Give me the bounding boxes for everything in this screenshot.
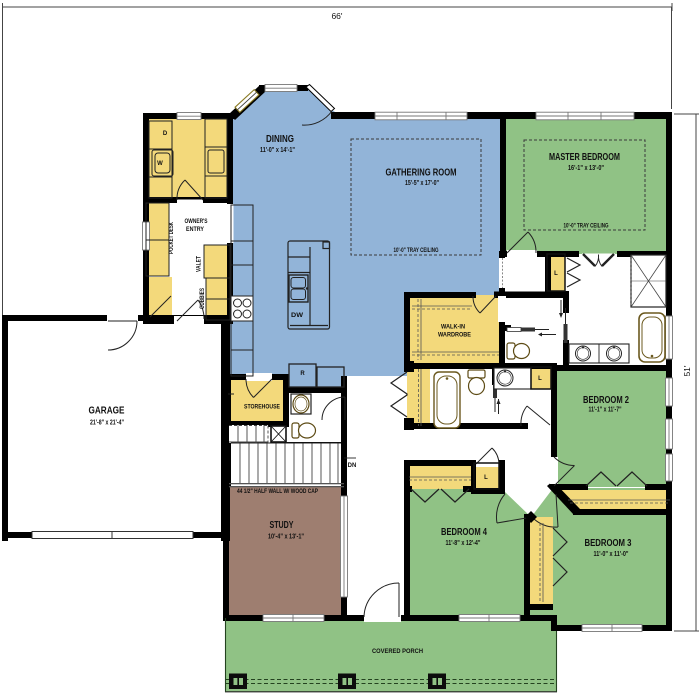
svg-text:L: L: [554, 271, 558, 277]
svg-text:66': 66': [331, 11, 342, 21]
svg-text:11'-0" x 11'-0": 11'-0" x 11'-0": [594, 551, 629, 558]
svg-text:L: L: [484, 475, 488, 481]
svg-text:OWNER'S: OWNER'S: [185, 219, 208, 225]
svg-text:21'-8" x 21'-4": 21'-8" x 21'-4": [90, 420, 124, 427]
svg-text:BEDROOM 2: BEDROOM 2: [583, 394, 629, 406]
svg-text:15'-5" x 17'-0": 15'-5" x 17'-0": [405, 180, 439, 187]
svg-text:ENTRY: ENTRY: [186, 227, 204, 233]
svg-text:10'-4" x 13'-1": 10'-4" x 13'-1": [268, 534, 304, 541]
svg-text:GARAGE: GARAGE: [89, 405, 125, 417]
svg-text:11'-0" x 14'-1": 11'-0" x 14'-1": [260, 147, 295, 154]
svg-text:STUDY: STUDY: [270, 519, 294, 531]
svg-text:16'-1" x 13'-0": 16'-1" x 13'-0": [568, 165, 604, 172]
svg-text:BEDROOM 3: BEDROOM 3: [585, 537, 632, 549]
svg-text:DINING: DINING: [266, 133, 294, 145]
svg-text:GATHERING ROOM: GATHERING ROOM: [386, 167, 457, 179]
svg-text:WARDROBE: WARDROBE: [438, 333, 471, 339]
svg-text:10'-0" TRAY CEILING: 10'-0" TRAY CEILING: [564, 224, 609, 230]
svg-text:DW: DW: [291, 313, 303, 319]
svg-text:D: D: [163, 131, 168, 137]
svg-text:R: R: [300, 371, 305, 377]
svg-text:11'-8" x 12'-4": 11'-8" x 12'-4": [446, 540, 481, 547]
svg-text:DN: DN: [348, 463, 357, 469]
svg-text:POCKET DESK: POCKET DESK: [169, 222, 175, 254]
svg-text:VALET: VALET: [197, 256, 203, 272]
svg-text:WALK-IN: WALK-IN: [441, 325, 465, 331]
svg-text:10'-0" TRAY CEILING: 10'-0" TRAY CEILING: [394, 248, 439, 254]
svg-text:COVERED PORCH: COVERED PORCH: [372, 649, 423, 655]
svg-text:CUBBIES: CUBBIES: [200, 288, 206, 309]
svg-text:STOREHOUSE: STOREHOUSE: [244, 405, 280, 411]
svg-text:44 1/2" HALF WALL W/ WOOD CAP: 44 1/2" HALF WALL W/ WOOD CAP: [237, 489, 318, 495]
svg-text:W: W: [157, 161, 163, 167]
svg-text:51': 51': [682, 365, 692, 376]
svg-text:L: L: [538, 376, 542, 382]
svg-text:11'-1" x 11'-7": 11'-1" x 11'-7": [589, 407, 622, 414]
svg-text:BEDROOM 4: BEDROOM 4: [441, 526, 487, 538]
svg-text:MASTER BEDROOM: MASTER BEDROOM: [549, 151, 620, 163]
